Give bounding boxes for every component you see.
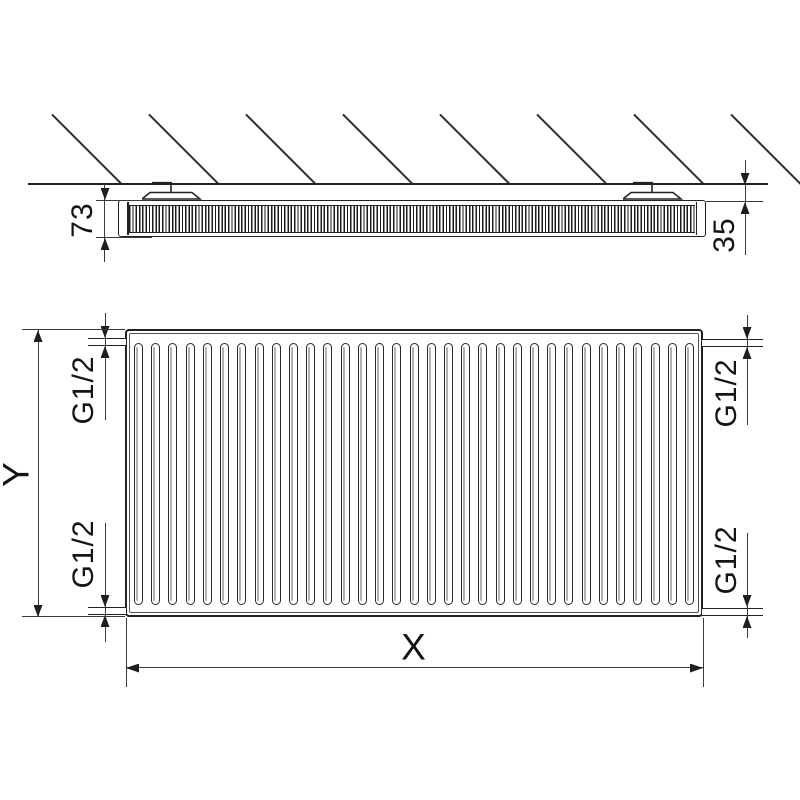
hatch-stroke (342, 114, 413, 185)
radiator-fin (255, 343, 264, 605)
radiator-fin (272, 343, 281, 605)
radiator-fin (186, 343, 195, 605)
radiator-fin (151, 343, 160, 605)
dim-connection-label-bottom-left: G1/2 (69, 519, 99, 588)
hatch-stroke (148, 114, 219, 185)
fin-shading-stripe (463, 347, 465, 601)
radiator-fin (427, 343, 436, 605)
radiator-fin (444, 343, 453, 605)
dim-depth-label: 73 (68, 202, 98, 237)
fin-shading-stripe (446, 347, 448, 601)
fin-shading-stripe (170, 347, 172, 601)
front-fins (134, 343, 694, 605)
radiator-technical-drawing: 73 35 G1/2 G1/2 G1/2 (0, 0, 800, 800)
wall-hatching (0, 0, 800, 200)
fin-shading-stripe (687, 347, 689, 601)
fin-shading-stripe (515, 347, 517, 601)
fin-shading-stripe (566, 347, 568, 601)
radiator-fin (582, 343, 591, 605)
fin-shading-stripe (670, 347, 672, 601)
radiator-fin (358, 343, 367, 605)
hatch-stroke (51, 114, 122, 185)
convector-fin-texture (129, 205, 695, 233)
radiator-fin (306, 343, 315, 605)
dim-connection-label-top-left: G1/2 (69, 355, 99, 424)
radiator-fin (513, 343, 522, 605)
dim-connection-label-top-right: G1/2 (712, 358, 742, 427)
wall-bracket-left (142, 181, 202, 200)
fin-shading-stripe (360, 347, 362, 601)
radiator-fin (168, 343, 177, 605)
radiator-fin (633, 343, 642, 605)
radiator-front-view (125, 329, 703, 617)
fin-shading-stripe (412, 347, 414, 601)
radiator-top-view (118, 200, 706, 237)
fin-shading-stripe (584, 347, 586, 601)
dim-height-label: Y (0, 461, 35, 487)
fin-shading-stripe (618, 347, 620, 601)
fin-shading-stripe (480, 347, 482, 601)
radiator-fin (685, 343, 694, 605)
radiator-fin (375, 343, 384, 605)
dim-wall-distance-label: 35 (710, 217, 740, 252)
fin-shading-stripe (188, 347, 190, 601)
radiator-fin (341, 343, 350, 605)
hatch-stroke (439, 114, 510, 185)
radiator-fin (392, 343, 401, 605)
connection-stub-top-left (88, 338, 126, 346)
fin-shading-stripe (394, 347, 396, 601)
wall-bracket-right (623, 181, 683, 200)
fin-shading-stripe (325, 347, 327, 601)
hatch-stroke (536, 114, 607, 185)
radiator-fin (203, 343, 212, 605)
connection-stub-bottom-right (702, 608, 763, 616)
radiator-fin (530, 343, 539, 605)
fin-shading-stripe (274, 347, 276, 601)
radiator-fin (134, 343, 143, 605)
end-cap-right (696, 202, 698, 235)
radiator-fin (478, 343, 487, 605)
fin-shading-stripe (498, 347, 500, 601)
radiator-fin (599, 343, 608, 605)
fin-shading-stripe (343, 347, 345, 601)
radiator-fin (651, 343, 660, 605)
fin-shading-stripe (291, 347, 293, 601)
fin-shading-stripe (239, 347, 241, 601)
connection-stub-top-right (702, 339, 763, 347)
fin-shading-stripe (308, 347, 310, 601)
fin-shading-stripe (653, 347, 655, 601)
fin-shading-stripe (257, 347, 259, 601)
radiator-fin (496, 343, 505, 605)
radiator-fin (668, 343, 677, 605)
fin-shading-stripe (601, 347, 603, 601)
radiator-fin (564, 343, 573, 605)
fin-shading-stripe (549, 347, 551, 601)
fin-shading-stripe (429, 347, 431, 601)
radiator-fin (237, 343, 246, 605)
fin-shading-stripe (377, 347, 379, 601)
dim-connection-label-bottom-right: G1/2 (712, 525, 742, 594)
fin-shading-stripe (205, 347, 207, 601)
fin-shading-stripe (222, 347, 224, 601)
fin-shading-stripe (532, 347, 534, 601)
radiator-fin (547, 343, 556, 605)
hatch-stroke (633, 114, 704, 185)
radiator-fin (461, 343, 470, 605)
dim-width-label: X (401, 629, 427, 666)
radiator-fin (220, 343, 229, 605)
radiator-fin (410, 343, 419, 605)
radiator-fin (323, 343, 332, 605)
radiator-fin (616, 343, 625, 605)
hatch-stroke (245, 114, 316, 185)
fin-shading-stripe (635, 347, 637, 601)
hatch-stroke (730, 114, 800, 185)
radiator-fin (289, 343, 298, 605)
fin-shading-stripe (153, 347, 155, 601)
fin-shading-stripe (136, 347, 138, 601)
connection-stub-bottom-left (88, 607, 126, 615)
